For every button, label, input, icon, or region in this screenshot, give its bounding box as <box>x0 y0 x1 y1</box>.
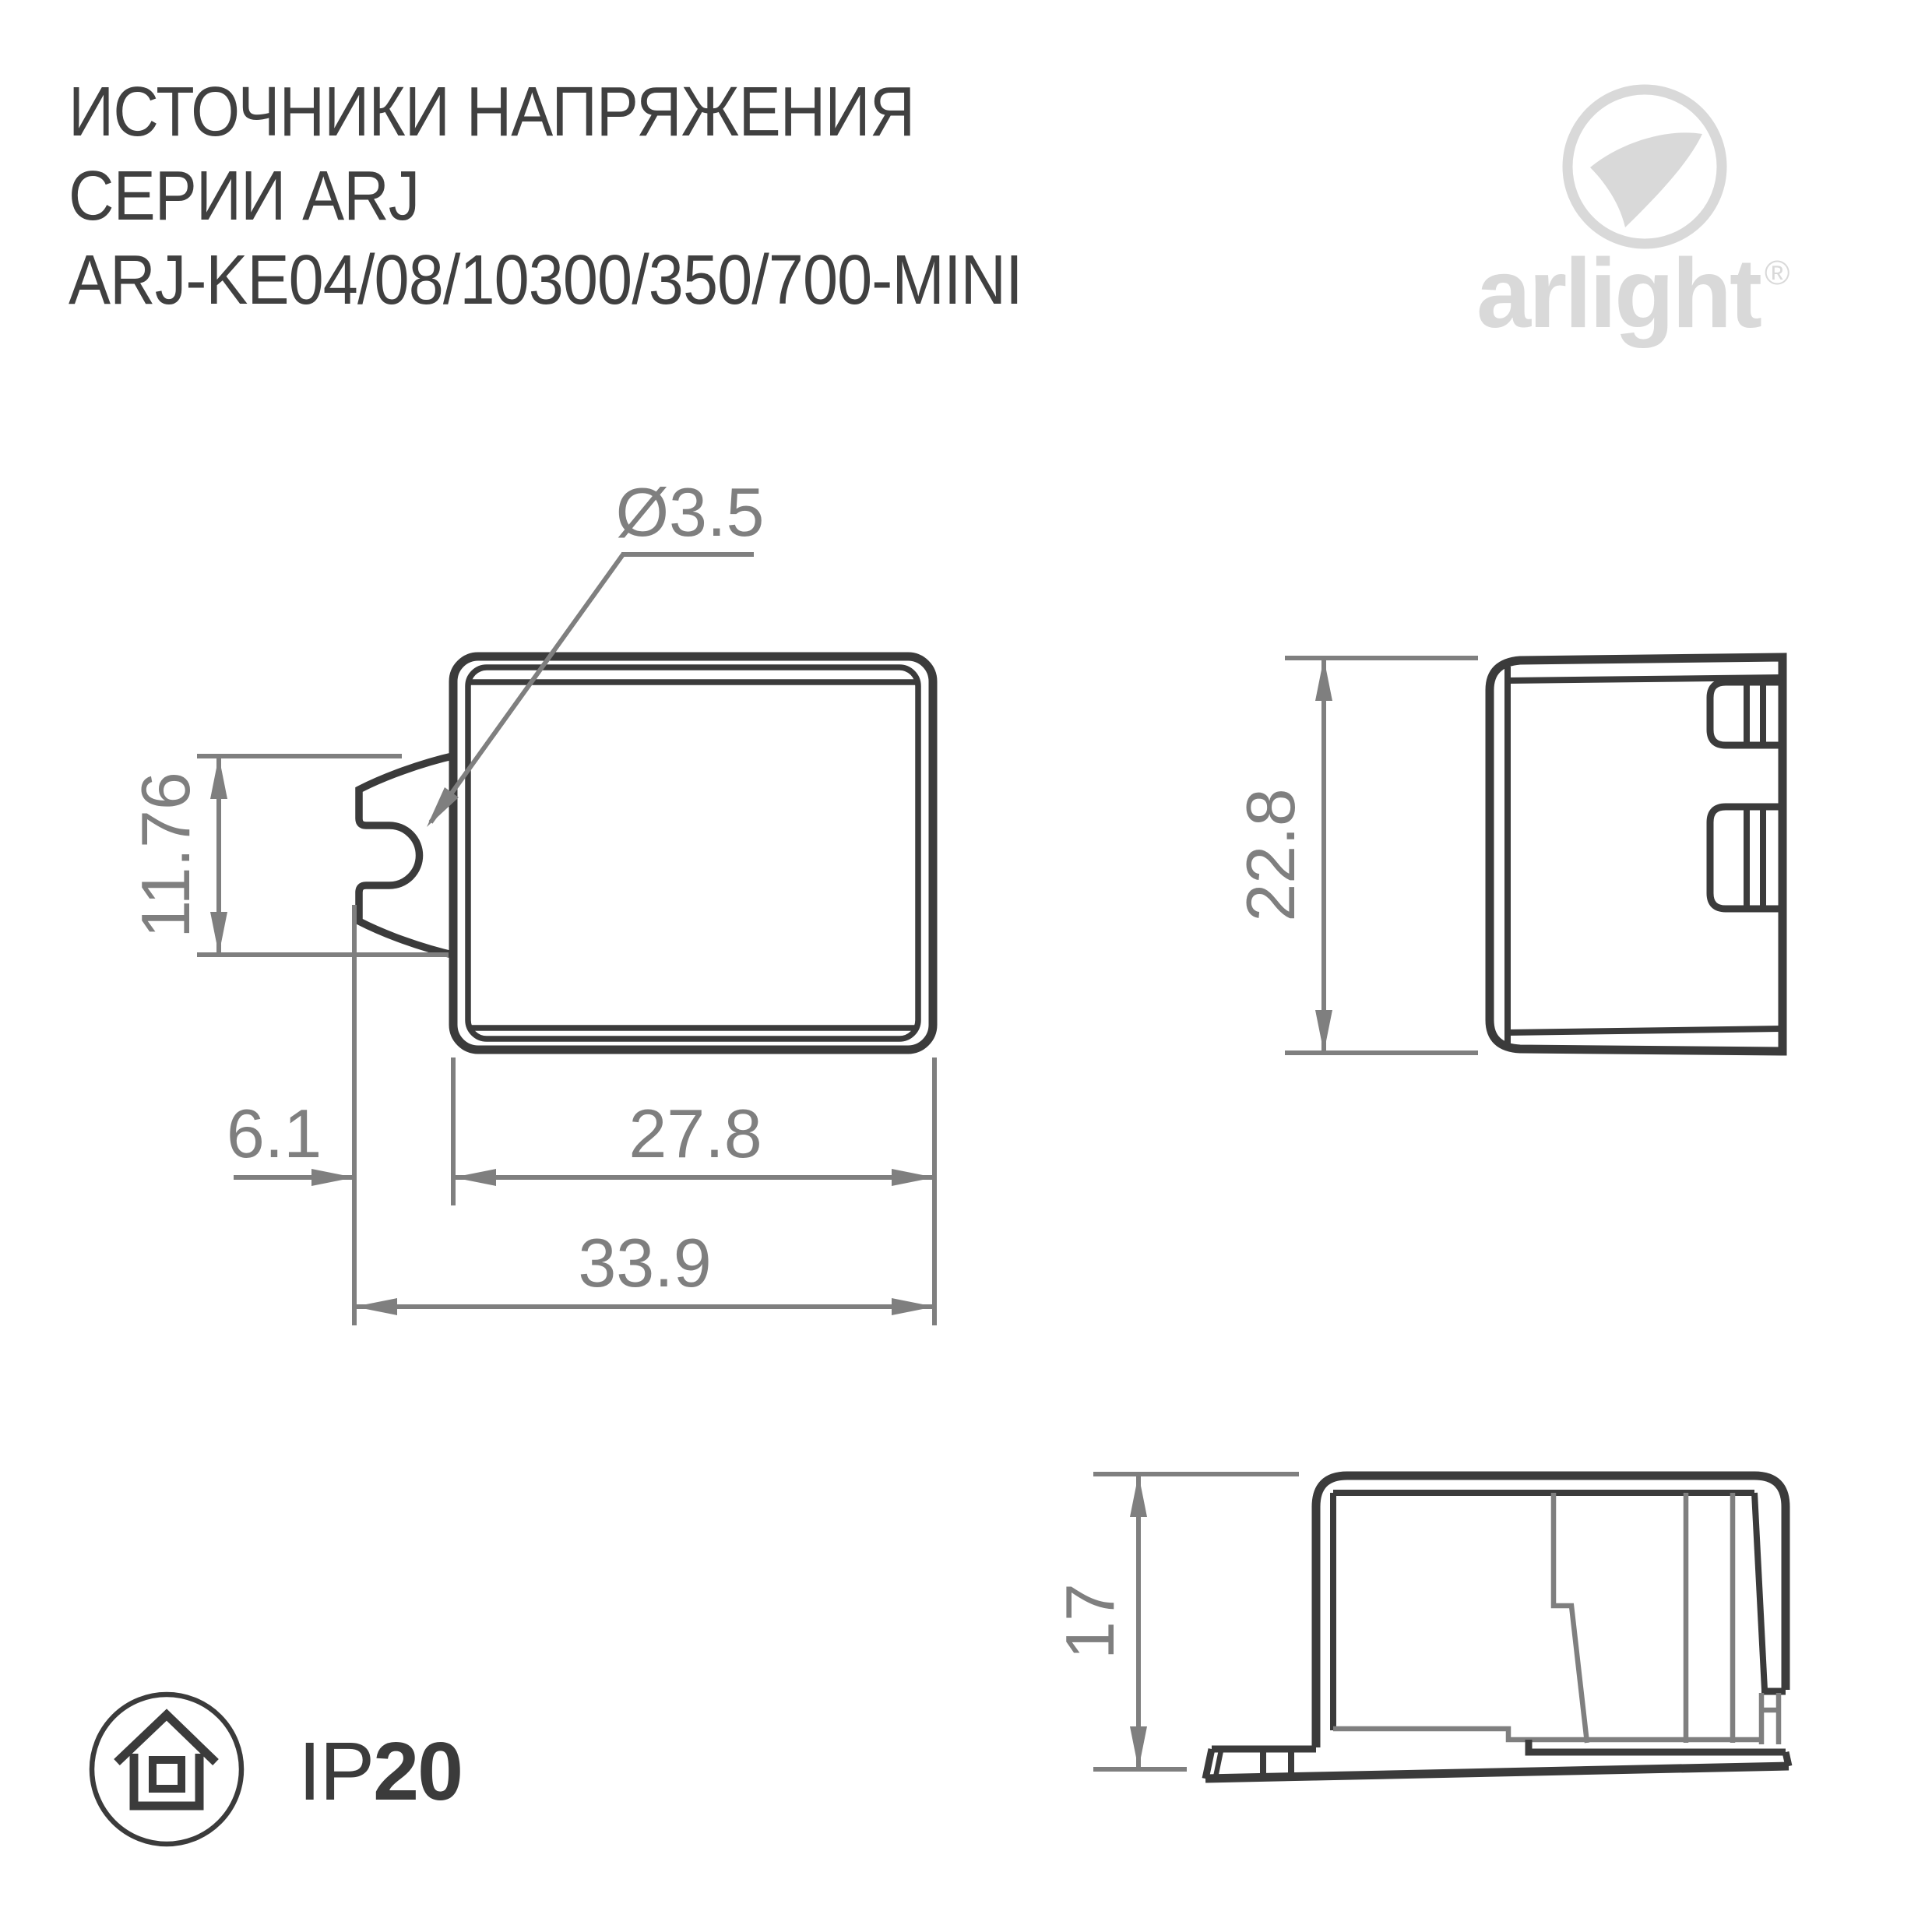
title-line-1: ИСТОЧНИКИ НАПРЯЖЕНИЯ <box>69 70 1022 154</box>
arrowhead <box>210 912 227 955</box>
side-view <box>1490 657 1782 1051</box>
side-body-outer <box>1490 657 1782 1051</box>
house-window <box>153 1760 181 1789</box>
registered-trademark-mark: ® <box>1765 254 1789 292</box>
base-right-edge <box>1786 1752 1789 1766</box>
dim-label-body-width: 27.8 <box>628 1095 762 1172</box>
arrowhead <box>892 1169 934 1186</box>
title-line-3: ARJ-KE04/08/10300/350/700-MINI <box>69 238 1022 322</box>
arlight-swoosh-icon <box>1568 90 1722 244</box>
profile-body-outer <box>1316 1476 1786 1747</box>
dim-label-clip-offset: 6.1 <box>227 1095 322 1172</box>
page-title: ИСТОЧНИКИ НАПРЯЖЕНИЯ СЕРИИ ARJ ARJ-KE04/… <box>69 70 1128 322</box>
front-view <box>359 656 933 1050</box>
dim-label-profile-height: 17 <box>1051 1583 1128 1659</box>
dim-label-hole-diameter: Ø3.5 <box>616 473 765 551</box>
dim-label-overall-width: 33.9 <box>578 1224 711 1301</box>
arrowhead <box>1130 1726 1147 1769</box>
arrowhead <box>1315 1010 1332 1053</box>
front-body-outer <box>453 656 933 1050</box>
brand-logo: arlight® <box>1476 234 1785 343</box>
dim-label-side-height: 22.8 <box>1232 788 1309 921</box>
logo-swoosh <box>1590 132 1702 227</box>
indoor-protection-house-icon <box>92 1694 241 1844</box>
title-line-2: СЕРИИ ARJ <box>69 154 1022 238</box>
arrowhead <box>1315 658 1332 701</box>
ip-rating: IP20 <box>298 1730 462 1813</box>
arrowhead <box>892 1298 934 1315</box>
arrowhead <box>210 756 227 799</box>
foot-left-edge <box>1205 1749 1212 1779</box>
side-inner-bottom-line <box>1508 1029 1782 1033</box>
dim-label-clip-height: 11.76 <box>127 772 204 938</box>
profile-view <box>1205 1476 1789 1779</box>
arrowhead <box>1130 1474 1147 1517</box>
mounting-clip <box>359 755 456 955</box>
arrowhead <box>354 1298 397 1315</box>
ip-rating-prefix: IP <box>298 1726 373 1818</box>
arrowhead <box>453 1169 496 1186</box>
foot-left-inner-edge <box>1216 1751 1221 1777</box>
brand-name: arlight <box>1476 238 1760 348</box>
ip-rating-value: 20 <box>373 1726 462 1818</box>
